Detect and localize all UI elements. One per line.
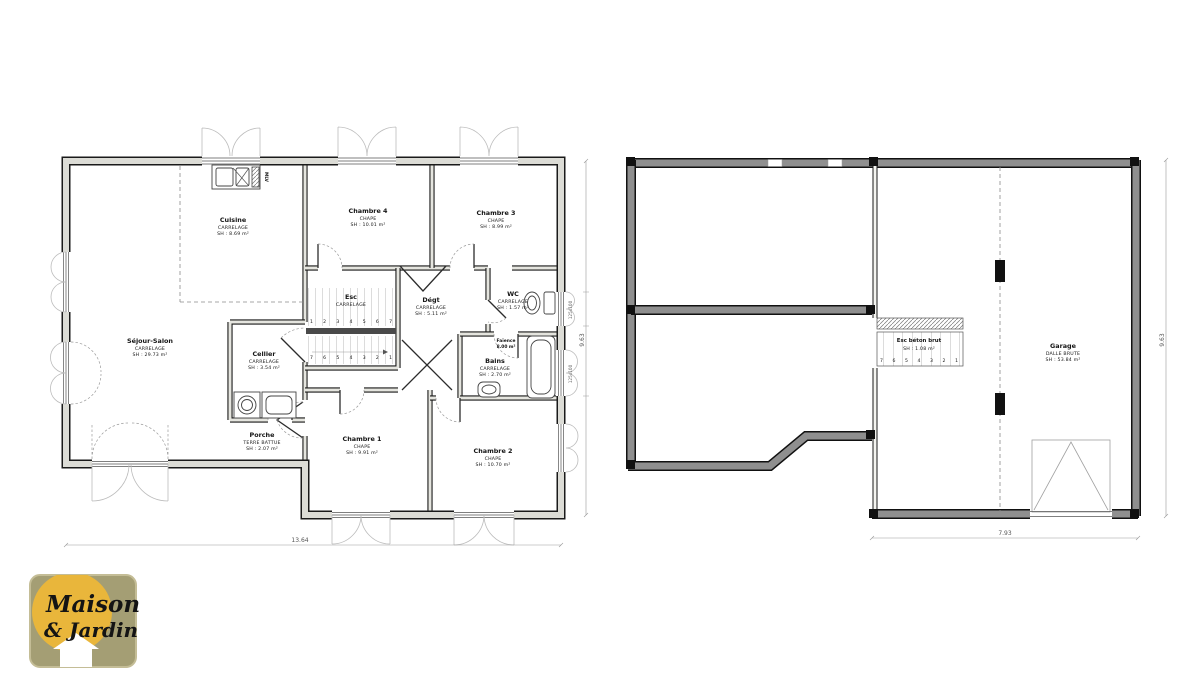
room-area-chambre2: SH : 10.70 m²: [475, 462, 510, 468]
room-name-wc: WC: [507, 290, 519, 298]
mlv-label: MLV: [263, 172, 269, 183]
room-name-esc: Esc: [345, 293, 357, 301]
room-name-chambre4: Chambre 4: [349, 207, 388, 215]
bath-sink-icon: [478, 382, 500, 397]
staircase: 1 2 3 4 5 6 7 7 6 5 4 3 2 1 Esc CARRELAG…: [306, 288, 396, 364]
room-finish-chambre4: CHAPE: [360, 216, 377, 222]
room-name-chambre3: Chambre 3: [477, 209, 516, 217]
room-area-garage: SH : 53.84 m²: [1045, 357, 1080, 363]
room-area-cuisine: SH : 8.69 m²: [217, 231, 249, 237]
dim-basement-bottom: 7.93: [998, 530, 1012, 537]
room-finish-sejour: CARRELAGE: [135, 346, 165, 352]
room-finish-bains: CARRELAGE: [480, 366, 510, 372]
maison-jardin-logo: Maison & Jardin: [30, 572, 140, 667]
floorplan-page: MLV 1 2 3 4 5 6 7 7 6 5 4 3 2 1 Esc CARR…: [0, 0, 1200, 684]
basement-stair-area: SH : 1.08 m²: [903, 346, 935, 352]
dim-floor-bottom: 13.64: [291, 537, 308, 544]
room-finish-chambre2: CHAPE: [485, 456, 502, 462]
room-finish-esc: CARRELAGE: [336, 302, 366, 308]
room-name-sejour: Séjour-Salon: [127, 337, 173, 345]
room-finish-wc: CARRELAGE: [498, 299, 528, 305]
room-finish-garage: DALLE BRUTE: [1046, 351, 1080, 357]
room-name-chambre1: Chambre 1: [343, 435, 382, 443]
room-area-sejour: SH : 29.73 m²: [132, 352, 167, 358]
room-name-degt: Dégt: [422, 296, 439, 304]
room-area-cellier: SH : 3.54 m²: [248, 365, 280, 371]
room-area-wc: SH : 1.57 m²: [497, 305, 529, 311]
room-name-garage: Garage: [1050, 342, 1077, 350]
room-finish-cuisine: CARRELAGE: [218, 225, 248, 231]
basement-stair-label: Esc béton brut: [897, 337, 942, 344]
room-finish-chambre3: CHAPE: [488, 218, 505, 224]
window-size-label-2: 125x100: [568, 364, 573, 383]
cellier-appliances: [234, 392, 296, 418]
logo-text-line1: Maison: [45, 591, 140, 618]
kitchen-sink-icon: [212, 165, 260, 189]
faience-note-2: 8.00 m²: [497, 344, 516, 350]
room-name-porche: Porche: [250, 431, 276, 439]
room-name-bains: Bains: [485, 357, 505, 365]
room-area-chambre3: SH : 8.99 m²: [480, 224, 512, 230]
dim-floor-right: 9.63: [579, 333, 586, 347]
room-area-porche: SH : 2.07 m²: [246, 446, 278, 452]
basement-staircase: Esc béton brut SH : 1.08 m² 7 6 5 4 3 2 …: [877, 318, 963, 366]
basement-plan: Esc béton brut SH : 1.08 m² 7 6 5 4 3 2 …: [626, 157, 1168, 540]
room-finish-cellier: CARRELAGE: [249, 359, 279, 365]
room-finish-porche: TERRE BATTUE: [242, 440, 280, 446]
floorplan-canvas: MLV 1 2 3 4 5 6 7 7 6 5 4 3 2 1 Esc CARR…: [0, 0, 1200, 684]
room-finish-chambre1: CHAPE: [354, 444, 371, 450]
room-area-bains: SH : 2.70 m²: [479, 372, 511, 378]
faience-note-1: Faïence: [497, 338, 516, 344]
room-area-degt: SH : 5.11 m²: [415, 311, 447, 317]
room-area-chambre4: SH : 10.01 m²: [350, 222, 385, 228]
logo-text-line2: & Jardin: [44, 618, 138, 642]
room-name-chambre2: Chambre 2: [474, 447, 513, 455]
garage-door-icon: [1030, 440, 1112, 517]
floor-plan: MLV 1 2 3 4 5 6 7 7 6 5 4 3 2 1 Esc CARR…: [50, 127, 589, 547]
bathtub-icon: [527, 336, 555, 398]
window-size-label-1: 125x100: [568, 300, 573, 319]
room-name-cellier: Cellier: [252, 350, 276, 358]
room-name-cuisine: Cuisine: [220, 216, 247, 224]
room-area-chambre1: SH : 9.91 m²: [346, 450, 378, 456]
room-finish-degt: CARRELAGE: [416, 305, 446, 311]
dim-basement-right: 9.63: [1159, 333, 1166, 347]
garage-zone: Garage DALLE BRUTE SH : 53.84 m²: [995, 167, 1112, 517]
